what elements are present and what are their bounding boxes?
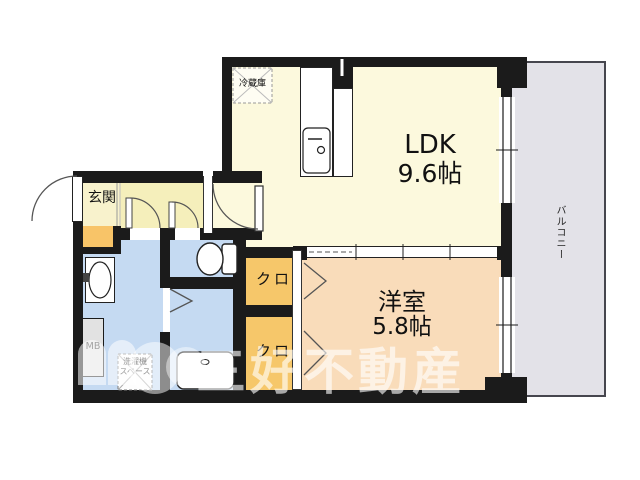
washer-line2: スペース: [116, 367, 154, 377]
washroom-door-leaf: [126, 198, 132, 228]
ldk-name: LDK: [380, 131, 480, 160]
western-name: 洋室: [350, 289, 454, 315]
washer-space-label: 洗濯機 スペース: [116, 357, 154, 378]
washer-line1: 洗濯機: [116, 357, 154, 367]
ldk-door-leaf: [255, 186, 263, 231]
vanity-basin: [89, 262, 111, 298]
bathroom-door-chevron: [170, 289, 192, 312]
vanity-faucet: [83, 273, 89, 282]
toilet-bowl: [197, 243, 223, 275]
entrance-door-arc: [32, 176, 77, 221]
toilet-door-leaf: [169, 202, 175, 228]
western-size: 5.8帖: [350, 315, 454, 340]
toilet-tank: [222, 244, 237, 274]
fixtures-layer: [0, 0, 640, 480]
closet-door-chevron: [304, 331, 326, 375]
meter-box-label: MB: [82, 342, 104, 352]
balcony-label: バルコニー: [550, 197, 565, 267]
washroom-door-arc: [130, 198, 160, 228]
kitchen-sink: [303, 128, 330, 173]
ldk-door-arc: [213, 184, 258, 229]
entrance-label: 玄関: [84, 191, 120, 206]
bathtub-drain: [201, 360, 209, 365]
refrigerator-label: 冷蔵庫: [231, 80, 274, 90]
closet-lower-label: クロ: [250, 343, 298, 360]
western-room-label: 洋室 5.8帖: [350, 289, 454, 341]
closet-door-chevron: [304, 263, 326, 299]
kitchen-drain: [318, 147, 325, 154]
ldk-size: 9.6帖: [380, 160, 480, 188]
toilet-door-arc: [172, 202, 198, 228]
bathtub: [177, 352, 234, 389]
floorplan: LDK 9.6帖 洋室 5.8帖 玄関 クロ クロ バルコニー 冷蔵庫 MB 洗…: [0, 0, 640, 480]
ldk-label: LDK 9.6帖: [380, 131, 480, 187]
closet-upper-label: クロ: [250, 271, 298, 288]
